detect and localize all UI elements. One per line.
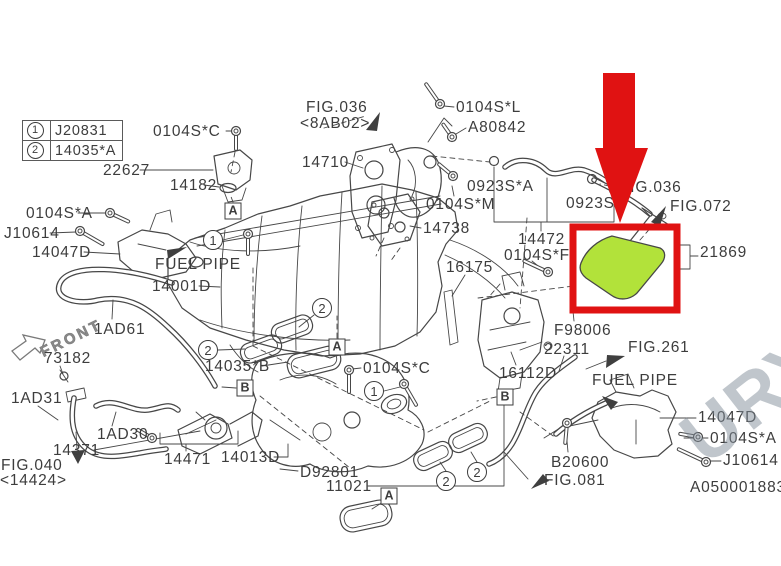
highlighted-hose-21869 [580,236,665,299]
parts-diagram: 1J20831214035*A FRONT 0104S*C22627141820… [0,0,781,566]
highlight-overlay [0,0,781,566]
highlight-red-arrow-icon [595,73,648,223]
